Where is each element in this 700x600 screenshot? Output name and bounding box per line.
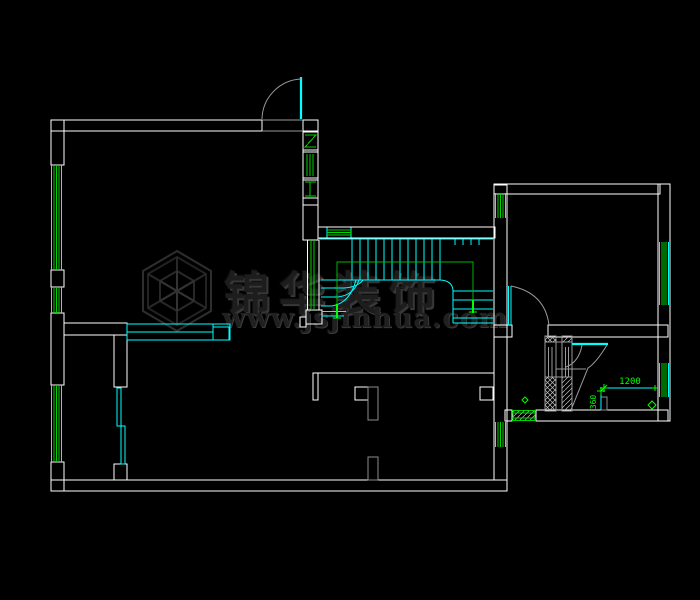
- wall-left-divider: [64, 323, 127, 335]
- window-east-2: [660, 363, 669, 397]
- wall-top-left: [51, 120, 262, 131]
- door-sill: [512, 410, 536, 421]
- dimension-360-label: 360: [589, 395, 598, 410]
- stair-treads: [319, 239, 493, 323]
- window-left-2: [52, 287, 62, 313]
- railing-green-lines: [311, 240, 314, 310]
- shaft-hatch: [545, 377, 556, 411]
- dimension-1200-label: 1200: [619, 377, 641, 387]
- stair-walk-line: [333, 262, 477, 318]
- exterior-walls: [51, 120, 670, 491]
- door-top: [262, 77, 303, 131]
- shaft-hatch: [562, 377, 572, 411]
- shaft-hatch: [562, 336, 572, 342]
- window-central-lower: [496, 422, 506, 447]
- floor-drain-icon: [648, 401, 656, 409]
- stair-newel-box: [306, 310, 322, 324]
- floor-plan-drawing: 1200 360: [0, 0, 700, 600]
- wall-top-stub: [303, 120, 318, 131]
- window-left-3: [52, 385, 62, 462]
- wall-bath-south: [536, 410, 668, 421]
- dimension-360: 360: [589, 387, 605, 410]
- door-upper-right-room: [509, 286, 550, 325]
- staircase: [319, 239, 493, 323]
- wall-bath-north: [548, 325, 668, 337]
- window-central-upper: [496, 193, 506, 218]
- wall-topright-north: [494, 184, 660, 194]
- window-left-1: [52, 165, 62, 270]
- floor-drain-icon: [522, 397, 528, 403]
- door-sliding-lower-left: [117, 388, 125, 464]
- flue-symbols: [305, 135, 316, 196]
- shaft-hatch: [545, 336, 556, 342]
- window-corridor: [327, 228, 351, 238]
- cad-canvas[interactable]: 锦华装饰 www.jsjinhua.com: [0, 0, 700, 600]
- window-east-1: [660, 242, 669, 305]
- wardrobe: [127, 324, 230, 340]
- wall-bottom: [51, 480, 507, 491]
- bathroom: 1200 360: [512, 336, 658, 421]
- stair-railing-edges: [308, 240, 320, 310]
- doors: [117, 77, 549, 464]
- stair-winder-curves: [321, 280, 453, 306]
- dimension-1200: 1200: [600, 377, 658, 392]
